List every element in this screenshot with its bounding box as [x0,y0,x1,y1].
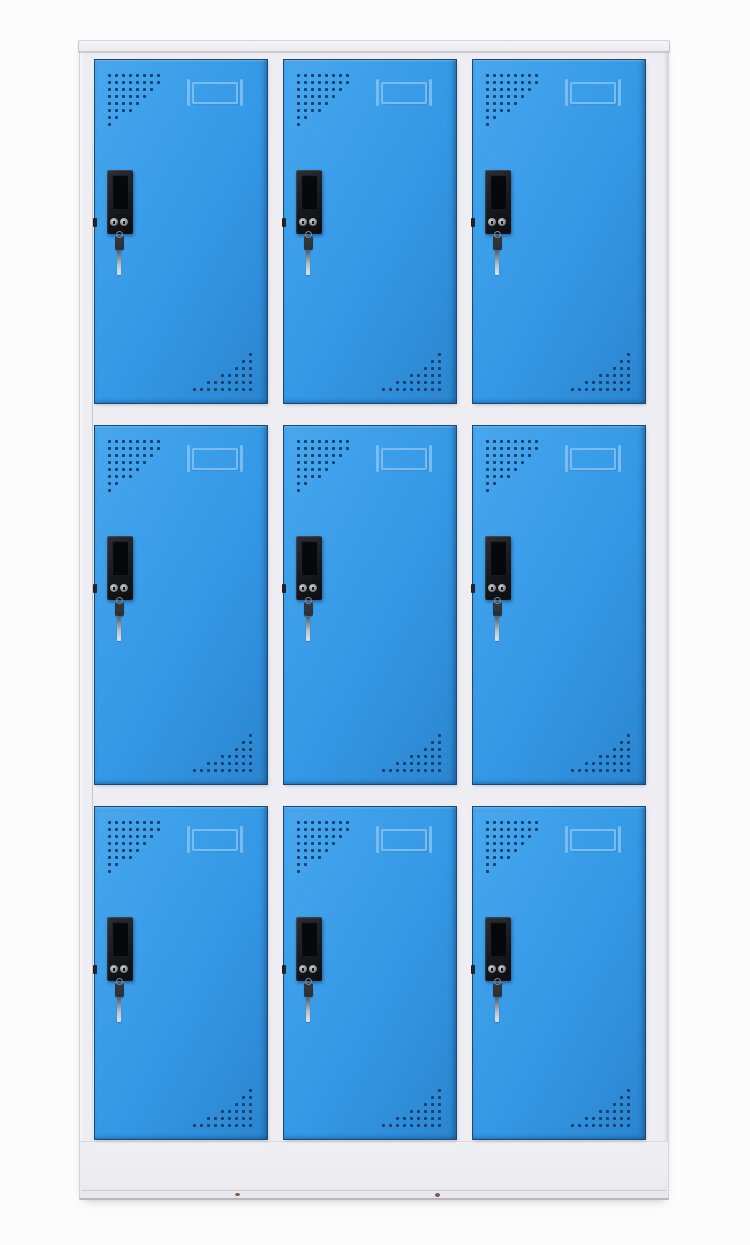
vent-hole [311,835,314,838]
vent-hole [249,388,252,391]
vent-row [410,374,441,377]
vent-row [613,1103,630,1106]
vent-hole [528,454,531,457]
vent-perforation-top-left-icon [108,821,160,873]
vent-hole [311,88,314,91]
vent-hole [143,440,146,443]
vent-row [585,381,630,384]
vent-hole [249,1110,252,1113]
vent-hole [129,835,132,838]
vent-hole [108,856,111,859]
door-latch [93,584,97,593]
vent-hole [424,1110,427,1113]
vent-row [297,454,342,457]
vent-hole [214,388,217,391]
vent-hole [115,482,118,485]
vent-hole [325,835,328,838]
vent-hole [108,88,111,91]
vent-hole [311,468,314,471]
vent-hole [318,74,321,77]
vent-hole [136,95,139,98]
vent-hole [389,769,392,772]
vent-hole [129,447,132,450]
vent-hole [214,1124,217,1127]
vent-hole [486,123,489,126]
vent-hole [514,74,517,77]
vent-hole [620,1117,623,1120]
vent-hole [108,870,111,873]
vent-hole [122,475,125,478]
vent-hole [214,762,217,765]
vent-hole [122,440,125,443]
vent-hole [535,74,538,77]
vent-row [620,741,630,744]
vent-hole [528,81,531,84]
vent-hole [606,1117,609,1120]
vent-hole [143,88,146,91]
vent-row [382,769,441,772]
vent-hole [500,88,503,91]
vent-hole [493,482,496,485]
vent-row [108,109,132,112]
vent-perforation-top-left-icon [297,440,349,492]
vent-hole [424,381,427,384]
vent-hole [150,81,153,84]
vent-hole [311,849,314,852]
vent-row [297,81,349,84]
vent-row [486,835,531,838]
vent-row [108,821,160,824]
vent-hole [318,475,321,478]
door-handle [485,917,515,1022]
vent-row [108,461,146,464]
vent-hole [332,81,335,84]
vent-hole [500,102,503,105]
vent-hole [627,367,630,370]
vent-perforation-top-left-icon [486,821,538,873]
vent-hole [108,482,111,485]
vent-row [599,755,630,758]
vent-hole [613,1117,616,1120]
vent-row [486,81,538,84]
vent-hole [521,842,524,845]
vent-hole [346,74,349,77]
vent-hole [221,381,224,384]
vent-hole [249,374,252,377]
vent-hole [438,741,441,744]
vent-hole [297,468,300,471]
handle-grip [296,536,322,600]
vent-hole [507,835,510,838]
vent-hole [122,461,125,464]
vent-row [297,835,342,838]
vent-hole [438,367,441,370]
vent-row [108,454,153,457]
vent-row [486,863,496,866]
vent-row [424,1103,441,1106]
vent-hole [318,95,321,98]
vent-hole [606,769,609,772]
vent-hole [143,835,146,838]
vent-row [297,468,328,471]
vent-row [424,367,441,370]
vent-hole [486,849,489,852]
vent-hole [311,74,314,77]
vent-hole [115,81,118,84]
vent-hole [207,1124,210,1127]
vent-hole [122,74,125,77]
vent-hole [242,755,245,758]
vent-hole [297,863,300,866]
vent-row [613,748,630,751]
vent-hole [500,440,503,443]
vent-hole [129,74,132,77]
vent-hole [431,1096,434,1099]
vent-hole [493,821,496,824]
vent-hole [318,849,321,852]
lock-cylinder-icon [488,218,496,226]
vent-hole [143,81,146,84]
vent-hole [129,440,132,443]
vent-row [108,81,160,84]
vent-hole [585,1124,588,1127]
key-fob [493,602,502,616]
vent-hole [304,468,307,471]
vent-hole [115,95,118,98]
vent-hole [115,74,118,77]
vent-hole [521,821,524,824]
handle-recess [490,541,506,575]
vent-hole [606,381,609,384]
vent-row [108,863,118,866]
vent-hole [325,454,328,457]
vent-perforation-top-left-icon [486,74,538,126]
vent-hole [571,1124,574,1127]
vent-hole [228,1124,231,1127]
vent-row [620,360,630,363]
vent-hole [242,1096,245,1099]
vent-hole [535,821,538,824]
vent-hole [507,461,510,464]
vent-hole [318,81,321,84]
vent-hole [122,109,125,112]
vent-hole [242,1110,245,1113]
vent-hole [115,863,118,866]
vent-hole [514,95,517,98]
vent-row [486,870,489,873]
vent-perforation-bottom-right-icon [382,1089,441,1127]
vent-hole [514,454,517,457]
vent-hole [396,388,399,391]
vent-hole [500,828,503,831]
vent-row [396,762,441,765]
vent-hole [214,1117,217,1120]
vent-hole [599,374,602,377]
vent-hole [606,374,609,377]
vent-hole [297,842,300,845]
vent-hole [438,1110,441,1113]
vent-hole [500,835,503,838]
vent-perforation-bottom-right-icon [382,353,441,391]
vent-hole [507,475,510,478]
vent-hole [242,1124,245,1127]
vent-hole [157,447,160,450]
vent-hole [228,755,231,758]
vent-hole [500,81,503,84]
vent-hole [339,821,342,824]
vent-row [486,482,496,485]
vent-row [297,828,349,831]
vent-hole [115,475,118,478]
handle-grip [485,536,511,600]
vent-hole [235,367,238,370]
vent-hole [332,454,335,457]
key-head-in-lock-icon [498,965,506,973]
vent-hole [620,360,623,363]
vent-hole [242,367,245,370]
vent-hole [571,388,574,391]
vent-hole [318,828,321,831]
vent-hole [403,1124,406,1127]
vent-hole [339,81,342,84]
vent-hole [115,440,118,443]
vent-hole [108,123,111,126]
vent-hole [535,81,538,84]
vent-row [249,734,252,737]
vent-hole [606,755,609,758]
vent-hole [571,769,574,772]
vent-hole [346,447,349,450]
vent-hole [486,88,489,91]
vent-hole [606,1110,609,1113]
vent-hole [486,828,489,831]
vent-hole [438,762,441,765]
vent-row [221,1110,252,1113]
vent-hole [528,74,531,77]
vent-hole [514,81,517,84]
vent-hole [627,1103,630,1106]
vent-hole [108,489,111,492]
vent-hole [207,769,210,772]
vent-hole [606,762,609,765]
lock-cylinder-icon [110,218,118,226]
vent-hole [620,1124,623,1127]
vent-hole [493,863,496,866]
vent-hole [304,828,307,831]
vent-row [620,1096,630,1099]
vent-hole [297,870,300,873]
vent-hole [249,1117,252,1120]
vent-hole [129,828,132,831]
vent-hole [493,116,496,119]
vent-perforation-top-left-icon [486,440,538,492]
vent-row [431,1096,441,1099]
vent-hole [493,447,496,450]
hanging-key-icon [306,251,310,275]
vent-hole [249,762,252,765]
vent-hole [297,489,300,492]
vent-hole [304,835,307,838]
vent-hole [297,440,300,443]
vent-row [410,1110,441,1113]
vent-hole [410,374,413,377]
vent-hole [318,102,321,105]
vent-hole [325,468,328,471]
vent-hole [249,755,252,758]
vent-hole [122,835,125,838]
vent-hole [486,856,489,859]
vent-hole [535,828,538,831]
vent-hole [417,381,420,384]
vent-hole [193,1124,196,1127]
handle-grip [296,917,322,981]
vent-hole [249,769,252,772]
vent-perforation-bottom-right-icon [382,734,441,772]
vent-hole [424,388,427,391]
vent-hole [304,856,307,859]
vent-hole [304,447,307,450]
vent-row [207,1117,252,1120]
vent-hole [507,95,510,98]
lock-cylinder-icon [299,218,307,226]
hanging-key-icon [495,998,499,1022]
vent-hole [122,856,125,859]
vent-hole [249,1124,252,1127]
vent-row [193,388,252,391]
vent-hole [438,769,441,772]
vent-hole [122,849,125,852]
vent-hole [143,95,146,98]
vent-hole [507,849,510,852]
vent-hole [438,1103,441,1106]
vent-hole [304,821,307,824]
vent-hole [339,835,342,838]
vent-hole [528,440,531,443]
vent-hole [500,475,503,478]
vent-hole [417,1124,420,1127]
key-head-in-lock-icon [498,218,506,226]
vent-row [108,856,132,859]
vent-hole [332,95,335,98]
locker-door-r1-c1 [94,59,268,404]
vent-hole [585,381,588,384]
vent-hole [214,769,217,772]
vent-hole [507,81,510,84]
vent-hole [108,468,111,471]
vent-row [627,734,630,737]
vent-hole [221,374,224,377]
vent-hole [514,447,517,450]
vent-hole [304,81,307,84]
vent-hole [108,821,111,824]
vent-hole [528,88,531,91]
vent-hole [521,440,524,443]
vent-row [108,482,118,485]
vent-hole [424,769,427,772]
vent-row [108,870,111,873]
vent-hole [143,74,146,77]
vent-hole [613,748,616,751]
vent-hole [108,116,111,119]
vent-hole [410,1124,413,1127]
vent-hole [585,388,588,391]
vent-hole [332,74,335,77]
vent-hole [242,388,245,391]
vent-hole [150,88,153,91]
vent-hole [431,762,434,765]
vent-hole [221,1124,224,1127]
vent-hole [318,835,321,838]
vent-row [382,388,441,391]
key-fob [493,983,502,997]
vent-hole [150,447,153,450]
vent-hole [507,821,510,824]
vent-hole [136,454,139,457]
vent-hole [242,360,245,363]
vent-hole [136,835,139,838]
vent-row [486,88,531,91]
vent-row [249,1089,252,1092]
vent-hole [486,81,489,84]
vent-row [297,74,349,77]
vent-hole [207,762,210,765]
hanging-key-icon [117,998,121,1022]
vent-hole [235,755,238,758]
vent-hole [108,102,111,105]
vent-hole [493,454,496,457]
vent-hole [311,461,314,464]
vent-hole [122,88,125,91]
vent-hole [585,1117,588,1120]
vent-hole [507,454,510,457]
handle-grip [107,917,133,981]
vent-hole [346,440,349,443]
vent-hole [493,475,496,478]
vent-row [438,1089,441,1092]
vent-hole [207,1117,210,1120]
vent-hole [136,74,139,77]
vent-hole [311,95,314,98]
vent-hole [627,734,630,737]
vent-hole [486,482,489,485]
vent-row [627,353,630,356]
vent-hole [521,454,524,457]
vent-hole [115,468,118,471]
vent-hole [228,381,231,384]
vent-hole [122,828,125,831]
vent-hole [613,769,616,772]
vent-hole [311,856,314,859]
lock-cylinder-icon [110,584,118,592]
door-latch [471,965,475,974]
vent-hole [500,74,503,77]
handle-recess [490,922,506,956]
vent-hole [200,1124,203,1127]
vent-hole [599,762,602,765]
vent-hole [136,828,139,831]
vent-row [221,374,252,377]
vent-hole [486,842,489,845]
vent-row [486,489,489,492]
vent-hole [129,849,132,852]
vent-hole [410,769,413,772]
vent-hole [493,828,496,831]
vent-row [438,734,441,737]
vent-hole [235,748,238,751]
vent-row [424,748,441,751]
vent-row [242,741,252,744]
vent-hole [514,88,517,91]
